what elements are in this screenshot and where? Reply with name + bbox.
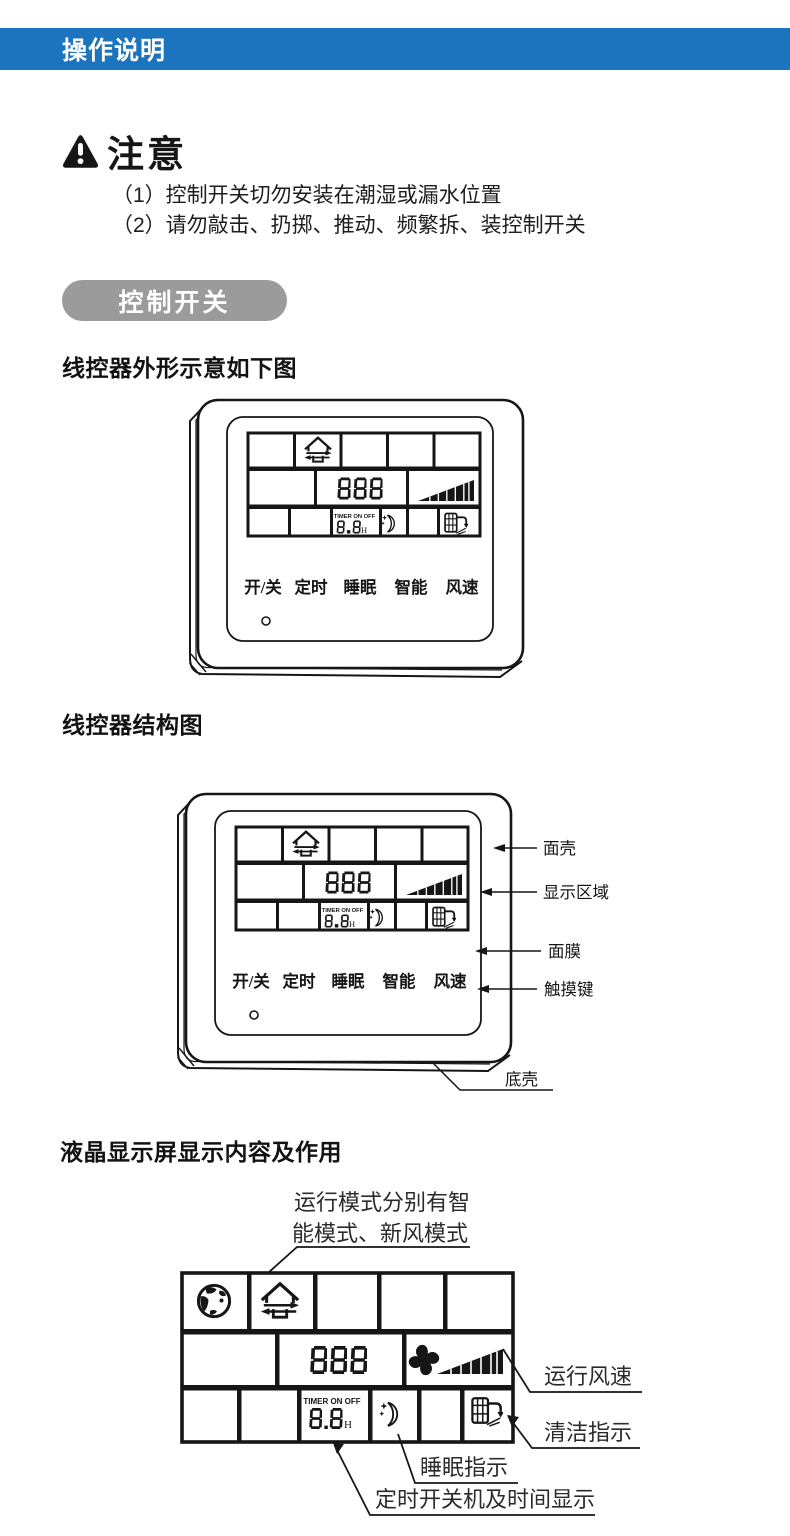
- key-fanspeed: 风速: [446, 577, 480, 597]
- notice-title: 注意: [107, 124, 187, 178]
- lcd-panel-large: TIMER ON OFF H: [182, 1273, 513, 1442]
- notice-header: 注意: [62, 124, 187, 178]
- key-timer: 定时: [295, 577, 329, 597]
- diagram-lcd-annotations: 运行模式分别有智 能模式、新风模式 TIMER ON OFF H: [170, 1180, 650, 1530]
- key-timer: 定时: [283, 971, 317, 991]
- label-face-shell: 面壳: [543, 839, 576, 858]
- lcd-timer-digits: [309, 1408, 343, 1429]
- globe-mode-icon: [198, 1285, 229, 1316]
- label-timer-display: 定时开关机及时间显示: [375, 1487, 595, 1512]
- label-clean: 清洁指示: [544, 1420, 632, 1445]
- controller-body: TIMER ON OFF H 开/关 定时 睡眠 智能 风速: [178, 794, 512, 1071]
- heading-outline: 线控器外形示意如下图: [62, 349, 297, 383]
- lcd-main-digits: [310, 1346, 368, 1374]
- heading-lcd: 液晶显示屏显示内容及作用: [60, 1133, 342, 1167]
- diagram-controller-structure: TIMER ON OFF H 开/关 定时 睡眠 智能 风速 面壳 显示区域: [173, 789, 625, 1101]
- notice-item: （2）请勿敲击、扔掷、推动、频繁拆、装控制开关: [112, 211, 586, 241]
- key-power: 开/关: [244, 577, 282, 597]
- diagram-controller-outline: TIMER ON OFF H 开/关 定时 睡眠 智能 风速: [185, 395, 535, 687]
- fresh-air-house-icon: [261, 1284, 299, 1317]
- label-fan-speed: 运行风速: [544, 1364, 632, 1389]
- timer-hour-unit: H: [361, 525, 367, 535]
- label-sleep: 睡眠指示: [420, 1455, 508, 1480]
- key-smart: 智能: [395, 577, 429, 597]
- key-power: 开/关: [232, 971, 270, 991]
- mode-annotation-line2: 能模式、新风模式: [292, 1221, 468, 1246]
- mode-annotation: 运行模式分别有智 能模式、新风模式: [268, 1190, 470, 1273]
- manual-page: 操作说明 注意 （1）控制开关切勿安装在潮湿或漏水位置 （2）请勿敲击、扔掷、推…: [0, 0, 790, 1536]
- section-pill-control-switch: 控制开关: [62, 280, 287, 321]
- fan-speed-ramp-icon: [437, 1349, 503, 1374]
- filter-clean-icon: [472, 1398, 504, 1426]
- sleep-moon-icon: [379, 1403, 397, 1426]
- label-membrane: 面膜: [548, 942, 581, 961]
- mode-annotation-line1: 运行模式分别有智: [294, 1190, 470, 1215]
- section-pill-label: 控制开关: [118, 283, 230, 319]
- section-header-bar: 操作说明: [0, 28, 790, 70]
- timer-hour-unit: H: [349, 919, 355, 929]
- key-smart: 智能: [383, 971, 417, 991]
- label-display-area: 显示区域: [543, 883, 609, 902]
- page-title: 操作说明: [62, 31, 166, 67]
- fan-blade-icon: [409, 1345, 439, 1375]
- key-sleep: 睡眠: [332, 971, 366, 991]
- notice-item: （1）控制开关切勿安装在潮湿或漏水位置: [112, 181, 586, 211]
- controller-body: TIMER ON OFF H 开/关 定时 睡眠 智能 风速: [190, 400, 524, 677]
- warning-icon: [62, 131, 99, 172]
- heading-structure: 线控器结构图: [62, 706, 203, 740]
- key-fanspeed: 风速: [434, 971, 468, 991]
- timer-on-off-label: TIMER ON OFF: [334, 514, 376, 520]
- key-sleep: 睡眠: [344, 577, 378, 597]
- label-touch-keys: 触摸键: [544, 980, 594, 999]
- notice-list: （1）控制开关切勿安装在潮湿或漏水位置 （2）请勿敲击、扔掷、推动、频繁拆、装控…: [112, 181, 586, 240]
- timer-on-off-label: TIMER ON OFF: [303, 1397, 360, 1406]
- label-bottom-shell: 底壳: [505, 1070, 538, 1089]
- timer-on-off-label: TIMER ON OFF: [322, 908, 364, 914]
- timer-hour-unit: H: [344, 1419, 352, 1431]
